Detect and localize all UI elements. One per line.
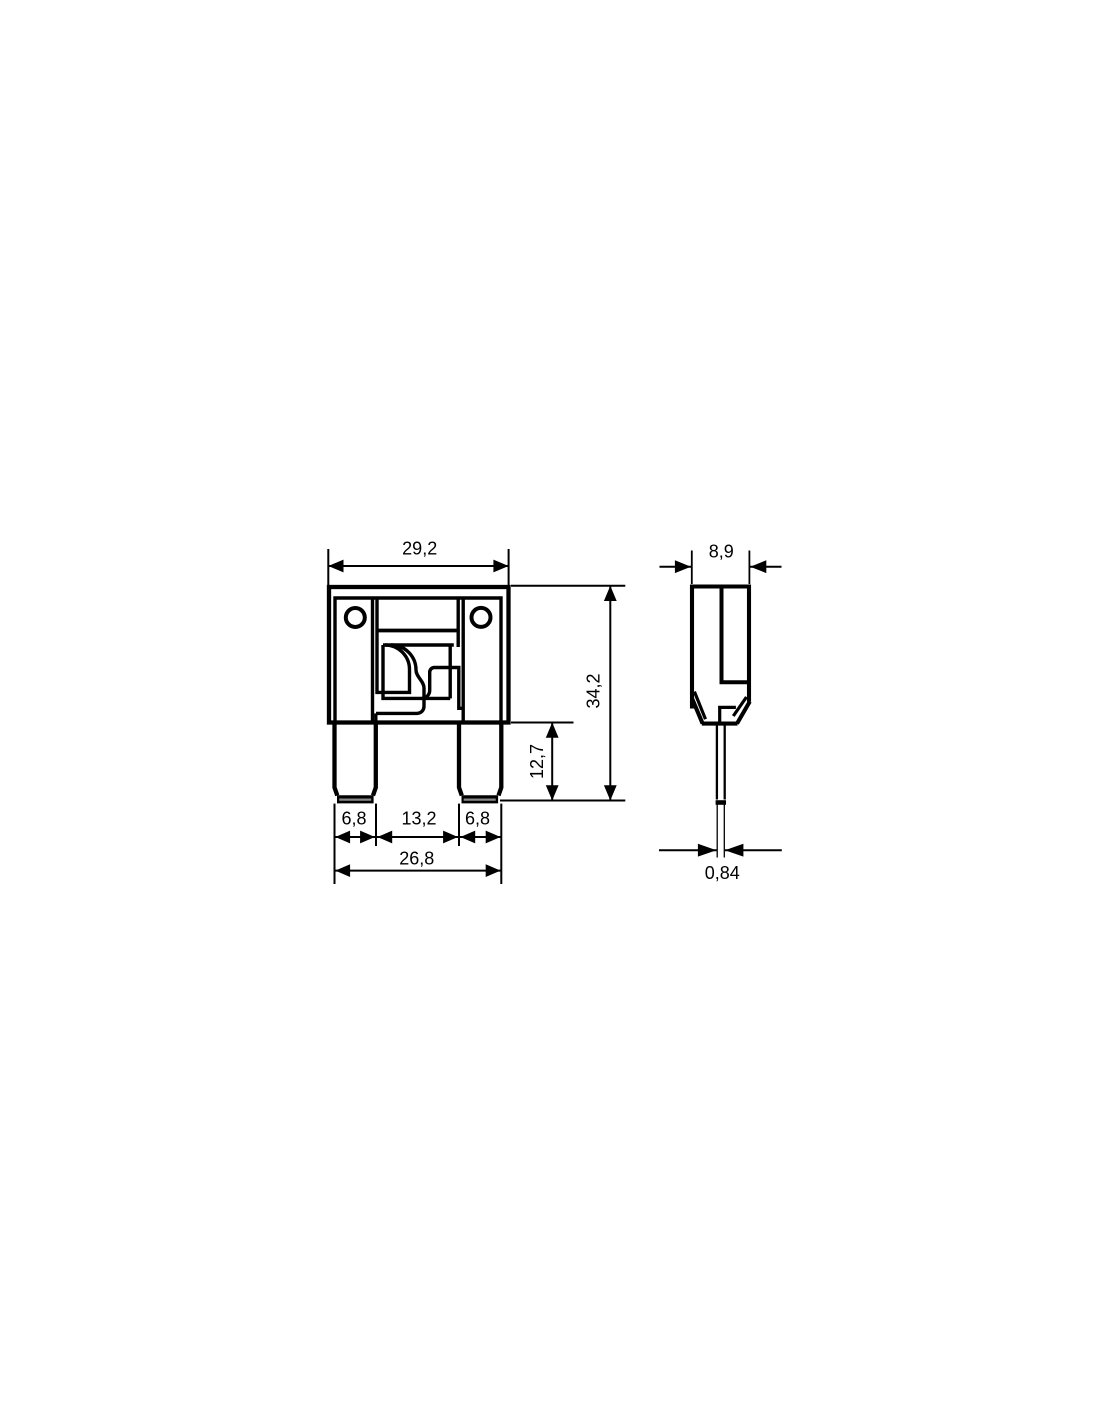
svg-text:34,2: 34,2 [583, 673, 603, 708]
svg-text:6,8: 6,8 [465, 808, 490, 828]
svg-text:29,2: 29,2 [402, 539, 437, 559]
svg-text:0,84: 0,84 [705, 863, 740, 883]
svg-text:26,8: 26,8 [399, 848, 434, 868]
svg-text:12,7: 12,7 [527, 744, 547, 779]
svg-text:6,8: 6,8 [341, 808, 366, 828]
svg-text:8,9: 8,9 [709, 541, 734, 561]
svg-text:13,2: 13,2 [401, 808, 436, 828]
